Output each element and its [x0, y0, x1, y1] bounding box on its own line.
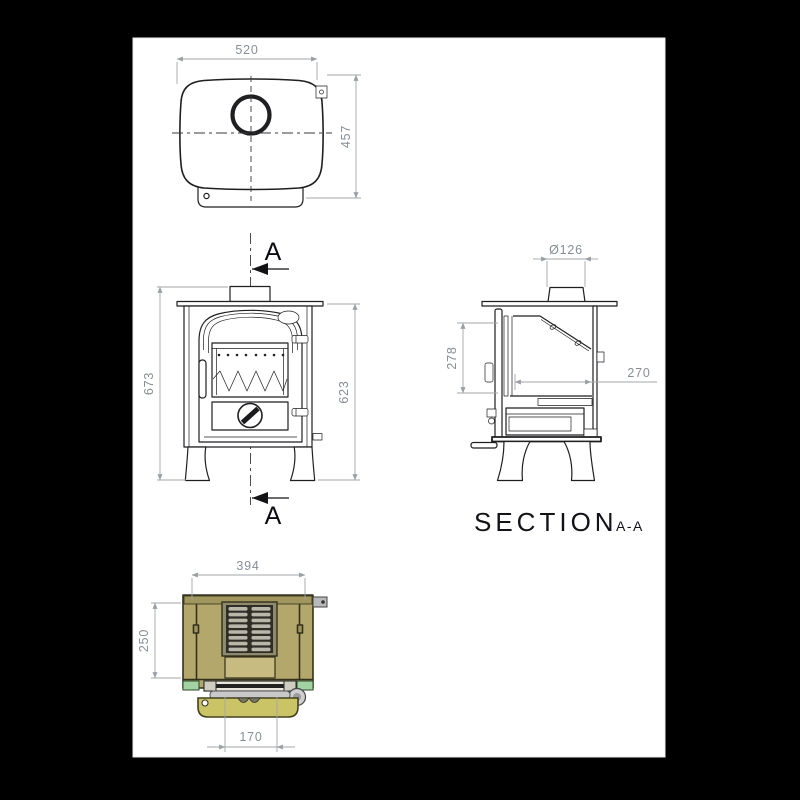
door-section: [495, 309, 502, 441]
dim-label-flue-diameter: Ø126: [549, 243, 583, 257]
riddling-rod: [471, 443, 497, 449]
seam-clip-left: [194, 625, 199, 633]
section-title: SECTION: [474, 507, 618, 537]
dim-label-firebox-height: 278: [445, 346, 459, 369]
flue-collar-front: [230, 287, 270, 302]
base-plate-section: [492, 437, 601, 442]
grate-opening: [226, 605, 273, 653]
rear-ledge: [538, 399, 592, 406]
dim-label-ash-lip: 170: [239, 730, 262, 744]
section-title-suffix: A-A: [616, 518, 644, 534]
latch-bracket-left: [204, 681, 216, 691]
top-view-tab: [316, 86, 327, 98]
dim-label-top-width: 520: [235, 43, 258, 57]
dim-label-bottom-width: 394: [236, 559, 259, 573]
rear-wall: [593, 306, 597, 438]
latch-slot: [214, 684, 286, 688]
hinge-bottom: [292, 409, 308, 417]
cut-label-bottom: A: [265, 502, 282, 530]
bottom-tab: [313, 597, 327, 607]
latch-section: [487, 409, 496, 417]
door-underside: [198, 698, 298, 717]
door-handle: [199, 360, 206, 398]
side-boss: [313, 434, 322, 441]
cut-label-top: A: [265, 238, 282, 266]
dim-label-body-height: 623: [337, 380, 351, 403]
bottom-lower-panel: [225, 657, 275, 678]
seam-clip-right: [298, 625, 303, 633]
top-plate-section: [482, 302, 617, 307]
top-plate-front: [177, 302, 323, 307]
stove-technical-drawing: 520 457 A A: [0, 0, 800, 800]
air-vent-oval: [278, 311, 299, 324]
rear-clip: [597, 352, 604, 362]
flue-collar-section: [548, 288, 585, 303]
dim-label-bottom-depth: 250: [137, 629, 151, 652]
pad-green-left: [183, 681, 199, 690]
bottom-tab-hole: [321, 600, 325, 604]
dim-label-top-depth: 457: [339, 125, 353, 148]
dim-label-firebox-depth: 270: [627, 366, 650, 380]
hinge-top: [292, 336, 308, 344]
glass-section: [504, 316, 508, 396]
dim-label-overall-height: 673: [142, 372, 156, 395]
handle-boss-section: [485, 363, 493, 382]
door-pin-hole: [202, 700, 208, 706]
